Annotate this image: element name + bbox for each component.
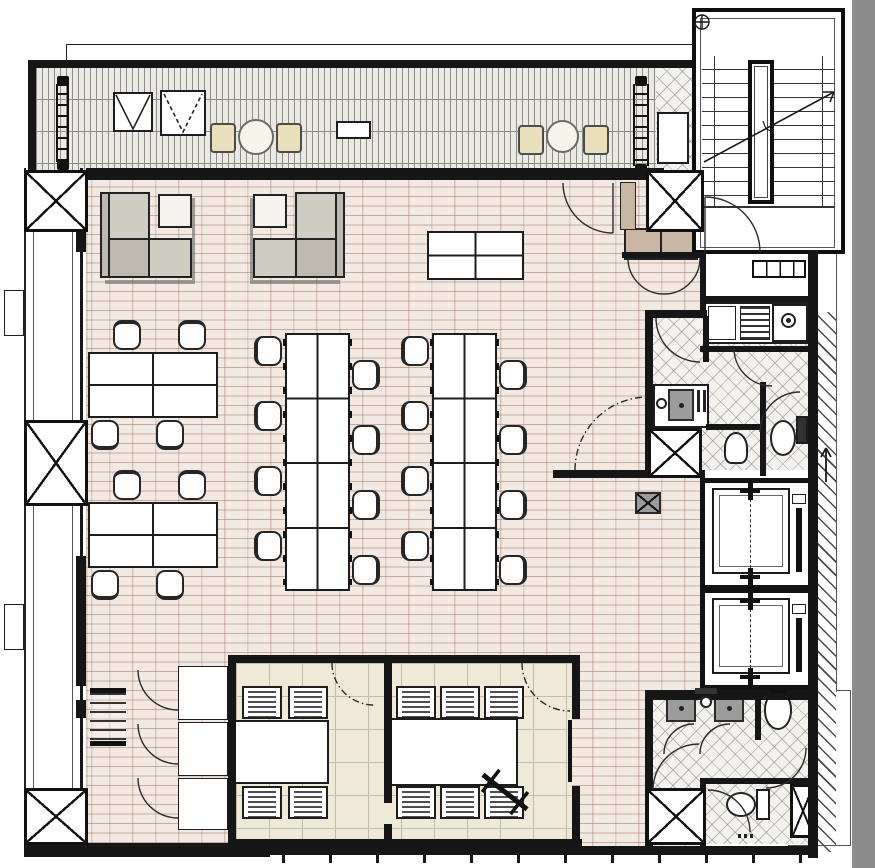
task-chair bbox=[499, 555, 527, 585]
meeting-right-wall-a bbox=[572, 655, 580, 719]
stair-margin-line-r bbox=[822, 56, 823, 208]
facade-tick bbox=[658, 846, 661, 863]
facade-tick bbox=[705, 846, 708, 863]
wc-mid-toilet-1 bbox=[724, 432, 748, 464]
meeting-divider-a bbox=[384, 655, 392, 803]
facade-tick bbox=[611, 846, 614, 863]
deck-chair bbox=[518, 125, 544, 155]
meeting-chair bbox=[288, 786, 328, 819]
task-chair bbox=[401, 466, 429, 496]
bench-desk bbox=[432, 333, 497, 591]
task-chair bbox=[352, 425, 380, 455]
meeting-chair bbox=[440, 786, 480, 819]
side-table bbox=[253, 194, 287, 228]
task-chair bbox=[401, 336, 429, 366]
meeting-chair bbox=[484, 786, 524, 819]
structural-column bbox=[646, 788, 706, 845]
meeting-top-wall bbox=[228, 655, 580, 663]
south-wall-right bbox=[266, 846, 818, 855]
elevator-rail-bracket bbox=[740, 599, 760, 603]
meeting-chair bbox=[484, 686, 524, 719]
task-chair bbox=[254, 466, 282, 496]
site-line-v1 bbox=[836, 246, 837, 692]
elevator-guide-centerline bbox=[750, 494, 751, 568]
sofa-seat-c bbox=[253, 238, 297, 278]
task-chair bbox=[156, 570, 184, 600]
floor-plan-canvas bbox=[0, 0, 875, 868]
elevator-door-rail bbox=[796, 508, 802, 572]
stall-wall-h bbox=[700, 778, 812, 784]
elevator-car-1 bbox=[712, 488, 790, 574]
task-chair bbox=[499, 360, 527, 390]
roof-hatch-2 bbox=[160, 90, 206, 136]
task-chair bbox=[401, 531, 429, 561]
meeting-door-leaf bbox=[568, 720, 572, 782]
lounge-sofa-set bbox=[100, 192, 192, 280]
south-wall-left bbox=[24, 843, 270, 857]
lounge-sofa-set bbox=[253, 192, 345, 280]
elevator-door-rail bbox=[796, 618, 802, 672]
vestibule-bottom-wall bbox=[700, 296, 818, 302]
task-chair bbox=[499, 490, 527, 520]
wc-partition-1 bbox=[703, 316, 709, 362]
stair-landing-line bbox=[700, 206, 835, 208]
deck-top-wall bbox=[28, 60, 694, 68]
building-right-wall bbox=[808, 250, 818, 858]
urinal-flush bbox=[770, 688, 786, 693]
facade-tick bbox=[470, 846, 473, 863]
elevator-rail-bracket bbox=[740, 675, 760, 679]
wc-mid-top-wall bbox=[645, 310, 707, 318]
elevator-rail-bracket bbox=[740, 489, 760, 493]
stair-margin-line-l bbox=[714, 56, 715, 208]
elevator-guide-centerline bbox=[750, 604, 751, 668]
coat-rack bbox=[90, 688, 126, 746]
facade-fin-lower bbox=[4, 604, 24, 650]
task-chair bbox=[352, 490, 380, 520]
task-chair bbox=[499, 425, 527, 455]
washroom-partition-v bbox=[755, 690, 761, 740]
meeting-table bbox=[232, 720, 329, 784]
entry-door-wall bbox=[622, 252, 704, 258]
structural-column bbox=[646, 170, 704, 232]
deck-chair bbox=[276, 123, 302, 153]
facade-tick bbox=[423, 846, 426, 863]
side-table bbox=[158, 194, 192, 228]
deck-ladder-right bbox=[633, 84, 649, 166]
deck-bench bbox=[336, 121, 371, 139]
vestibule-glass-panels bbox=[752, 260, 806, 278]
elevator-machine-box bbox=[792, 494, 806, 504]
washroom-faucet bbox=[700, 696, 712, 708]
washroom-top-wall bbox=[645, 690, 818, 700]
structural-column bbox=[648, 428, 702, 478]
stairwell-block bbox=[692, 8, 845, 254]
facade-tick bbox=[517, 846, 520, 863]
deck-gate-left bbox=[56, 84, 69, 162]
task-chair bbox=[91, 420, 119, 450]
meeting-chair bbox=[440, 686, 480, 719]
left-wall-chunk-1 bbox=[76, 230, 86, 252]
stall-paper-holder bbox=[738, 834, 754, 838]
facade-tick bbox=[282, 846, 285, 863]
facade-tick bbox=[752, 846, 755, 863]
meeting-chair bbox=[242, 786, 282, 819]
deck-left-wall bbox=[28, 60, 36, 178]
site-line-v2 bbox=[850, 690, 851, 846]
vestibule-left-wall bbox=[700, 252, 706, 312]
structural-column bbox=[24, 170, 88, 232]
task-chair bbox=[156, 420, 184, 450]
kitchen-drainboard bbox=[740, 306, 770, 340]
bench-desk bbox=[285, 333, 350, 591]
task-chair bbox=[401, 401, 429, 431]
task-chair bbox=[178, 470, 206, 500]
facade-tick bbox=[799, 846, 802, 863]
kitchen-faucet bbox=[781, 313, 796, 328]
facade-tick bbox=[329, 846, 332, 863]
utility-sink-unit bbox=[668, 389, 694, 421]
facade-fin-upper bbox=[4, 290, 24, 336]
left-facade-mullion-b bbox=[72, 230, 73, 788]
elevator-rail-bracket bbox=[740, 575, 760, 579]
facade-tick bbox=[564, 846, 567, 863]
elevator-machine-box bbox=[792, 604, 806, 614]
wc-partition-3 bbox=[706, 424, 762, 430]
left-wall-chunk-3 bbox=[76, 700, 86, 718]
kitchen-bottom-wall bbox=[700, 346, 818, 352]
meeting-chair bbox=[288, 686, 328, 719]
desk-cluster bbox=[88, 502, 218, 568]
utility-bars bbox=[697, 390, 706, 412]
washroom-soap-shelf bbox=[695, 688, 717, 694]
roof-hatch-1 bbox=[113, 92, 153, 132]
office-north-wall bbox=[86, 168, 664, 180]
sofa-seat-a bbox=[295, 192, 337, 240]
left-facade-mullion-a bbox=[33, 230, 34, 788]
task-chair bbox=[352, 555, 380, 585]
deck-planter-frame bbox=[657, 112, 689, 164]
deck-round-table bbox=[238, 119, 274, 155]
meeting-chair bbox=[396, 686, 436, 719]
deck-chair bbox=[583, 125, 609, 155]
meeting-left-wall bbox=[228, 655, 236, 847]
left-wall-chunk-2 bbox=[76, 556, 86, 686]
stall-toilet-bowl bbox=[726, 792, 756, 817]
structural-column bbox=[24, 420, 88, 506]
stair-newel bbox=[748, 60, 774, 204]
storage-cabinet bbox=[178, 666, 228, 720]
meeting-chair bbox=[242, 686, 282, 719]
meeting-table bbox=[390, 718, 518, 786]
kitchen-cabinet-box bbox=[708, 306, 736, 340]
task-chair bbox=[113, 470, 141, 500]
task-chair bbox=[113, 320, 141, 350]
elevator-car-inner bbox=[719, 605, 783, 667]
task-chair bbox=[254, 336, 282, 366]
intercom-panel bbox=[635, 492, 661, 514]
site-line-h1 bbox=[836, 690, 851, 691]
stall-toilet-tank bbox=[756, 789, 770, 820]
structural-column bbox=[24, 788, 88, 845]
viewer-gutter bbox=[852, 0, 875, 868]
task-chair bbox=[352, 360, 380, 390]
storage-cabinet bbox=[178, 722, 228, 776]
task-chair bbox=[91, 570, 119, 600]
elevator-car-inner bbox=[719, 495, 783, 567]
meeting-chair bbox=[396, 786, 436, 819]
task-chair bbox=[254, 531, 282, 561]
entry-cabinet-strip bbox=[620, 182, 636, 230]
sofa-seat-c bbox=[148, 238, 192, 278]
right-shaft-hatch bbox=[818, 312, 836, 852]
left-facade-inner-line bbox=[80, 168, 83, 845]
desk-cluster bbox=[88, 352, 218, 418]
left-facade-outer-line bbox=[24, 168, 26, 847]
storage-cabinet bbox=[178, 778, 228, 830]
standing-table bbox=[427, 231, 524, 280]
facade-tick bbox=[376, 846, 379, 863]
sofa-seat-b bbox=[108, 238, 150, 278]
task-chair bbox=[254, 401, 282, 431]
sofa-seat-b bbox=[295, 238, 337, 278]
deck-round-table bbox=[546, 120, 579, 153]
deck-chair bbox=[210, 123, 236, 153]
sofa-seat-a bbox=[108, 192, 150, 240]
wc-mid-toilet-2 bbox=[770, 420, 796, 456]
utility-faucet bbox=[656, 398, 667, 409]
task-chair bbox=[178, 320, 206, 350]
wc-mid-cistern bbox=[796, 416, 808, 444]
